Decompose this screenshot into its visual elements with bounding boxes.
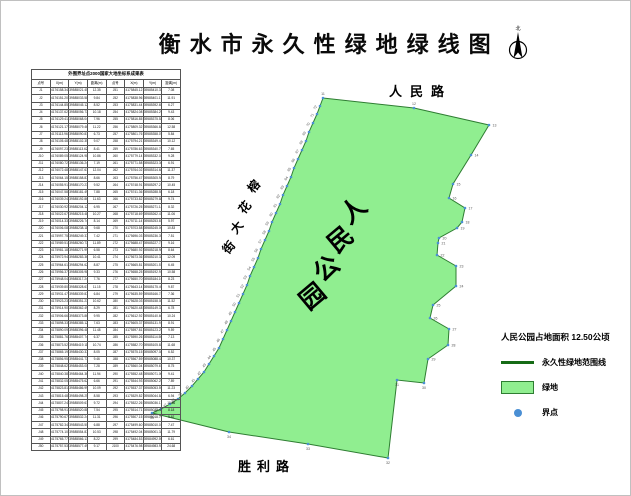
coord-cell: J30 [32,298,51,305]
coord-cell: 39585068.04 [69,117,88,124]
boundary-point-dot [488,124,491,127]
coord-cell: 9.16 [162,240,181,247]
table-row: J224175989.5139585260.7311.89J724175688.… [32,240,181,247]
boundary-point-dot [271,221,274,224]
coord-cell: 39585407.74 [69,335,88,342]
coord-cell: J38 [32,356,51,363]
coord-cell: 8.29 [87,305,106,312]
coord-cell: 39585090.81 [69,131,88,138]
boundary-point-dot [226,329,229,332]
coord-cell: 39585192.86 [69,196,88,203]
boundary-point-label: 28 [452,344,456,348]
boundary-point-label: 66 [291,158,297,164]
coord-cell: 11.79 [162,429,181,436]
table-row: J184176022.6739585215.4810.27J684175718.… [32,211,181,218]
table-row: J474175782.3439585543.506.88J974175499.6… [32,422,181,429]
coord-cell: 10.24 [162,313,181,320]
coord-cell: 10.62 [87,298,106,305]
coord-cell: 4175981.18 [50,247,69,254]
coord-cell: J76 [106,269,125,276]
coord-cell: J12 [32,167,51,174]
coord-cell: 39585577.49 [69,444,88,451]
coord-cell: J53 [106,102,125,109]
table-row: J24176151.2039585033.589.84J524175838.96… [32,95,181,102]
boundary-point-label: 57 [258,239,264,245]
table-row: J504175757.5339585577.499.17J1004175476.… [32,444,181,451]
table-title: 外围界址点2000国家大地坐标系成果表 [32,70,181,80]
coord-cell: J45 [32,407,51,414]
north-needle [514,32,523,58]
coord-cell: 39585349.41 [143,138,162,145]
coord-cell: 4175711.14 [125,218,144,225]
coord-cell: 4175612.92 [125,313,144,320]
coord-cell: J24 [32,255,51,262]
street-name-char: 街 [218,238,238,258]
coord-cell: J78 [106,284,125,291]
coord-cell: 4176022.67 [50,211,69,218]
coord-cell: 11.06 [162,211,181,218]
coord-cell: 9.72 [87,400,106,407]
coord-cell: 10.09 [87,385,106,392]
coord-cell: 11.15 [87,284,106,291]
coord-cell: 7.28 [87,364,106,371]
coord-cell: J42 [32,385,51,392]
boundary-point-label: 64 [284,176,290,182]
coord-cell: 39585419.11 [69,342,88,349]
coord-cell: 39585262.47 [143,211,162,218]
coord-cell: J8 [32,138,51,145]
boundary-point-dot [249,275,252,278]
table-row: J54176129.4139585068.047.96J554175816.85… [32,117,181,124]
coord-cell: 39585362.49 [69,305,88,312]
boundary-point-label: 31 [395,383,399,387]
coord-cell: 9.43 [162,109,181,116]
table-row: J134176064.1539585158.878.66J634175756.4… [32,175,181,182]
coord-cell: 4176039.24 [50,196,69,203]
coord-cell: 4175620.48 [125,305,144,312]
boundary-point-label: 46 [216,338,222,344]
boundary-point-label: 69 [302,131,308,137]
coord-cell: J25 [32,262,51,269]
boundary-point-label: 26 [434,317,438,321]
boundary-point-dot [316,113,319,116]
coord-cell: 39585210.32 [143,255,162,262]
boundary-point-label: 51 [236,293,242,299]
legend-item-boundary-point: 界点 [501,407,626,418]
coord-cell: J9 [32,146,51,153]
coord-cell: 10.41 [87,255,106,262]
boundary-point-dot [242,293,245,296]
coord-cell: 8.91 [162,320,181,327]
coord-cell: 39585520.88 [69,407,88,414]
coord-cell: 7.13 [162,335,181,342]
coord-cell: 4175856.95 [50,356,69,363]
table-row: J114176080.7239585136.247.19J614175771.5… [32,160,181,167]
coord-cell: 12.04 [87,167,106,174]
coord-cell: J3 [32,102,51,109]
coord-cell: 8.79 [162,175,181,182]
coord-cell: J84 [106,327,125,334]
table-header-row: 点号X(m)Y(m)距离(m)点号X(m)Y(m)距离(m) [32,80,181,88]
table-row: J14176158.3439585021.4512.35J514175845.1… [32,88,181,95]
coord-cell: J13 [32,175,51,182]
column-header: X(m) [50,80,69,88]
coord-cell: 8.23 [162,276,181,283]
street-name-char: 大 [227,218,246,237]
coord-cell: 4175923.23 [50,298,69,305]
coord-cell: 5.84 [162,131,181,138]
boundary-point-label: 25 [437,304,441,308]
coord-cell: 39585314.68 [143,167,162,174]
boundary-point-label: 49 [228,311,234,317]
coord-cell: 11.22 [87,124,106,131]
coord-cell: 39585123.25 [143,327,162,334]
coord-cell: 39585305.98 [69,269,88,276]
boundary-point-dot [455,265,458,268]
coord-cell: 39585204.12 [69,204,88,211]
coord-cell: 39585097.08 [143,349,162,356]
coord-cell: 4176047.58 [50,189,69,196]
coordinate-table: 外围界址点2000国家大地坐标系成果表 点号X(m)Y(m)距离(m)点号X(m… [31,69,181,451]
coord-cell: J77 [106,276,125,283]
boundary-point-dot [437,242,440,245]
coord-cell: J79 [106,291,125,298]
coord-cell: J7 [32,131,51,138]
coord-cell: 9.41 [162,371,181,378]
table-row: J464175790.6739585532.2411.31J964175507.… [32,414,181,421]
boundary-point-label: 48 [224,320,230,326]
column-header: Y(m) [143,80,162,88]
boundary-point-swatch [501,409,534,417]
table-row: J384175856.9539585441.739.46J884175567.5… [32,356,181,363]
boundary-point-label: 24 [460,285,464,289]
coord-cell: 39585045.12 [69,102,88,109]
table-row: J214175997.7539585249.377.42J714175696.0… [32,233,181,240]
table-row: J354175881.7639585407.746.37J854175590.2… [32,335,181,342]
coord-cell: 39585166.74 [143,291,162,298]
column-header: Y(m) [69,80,88,88]
coord-cell: 10.83 [162,226,181,233]
coord-cell: 4175765.77 [50,436,69,443]
table-row: J204176006.0839585238.119.68J704175703.5… [32,226,181,233]
coord-cell: J46 [32,414,51,421]
coord-cell: 39585260.73 [69,240,88,247]
coord-cell: J11 [32,160,51,167]
coord-cell: 8.05 [87,349,106,356]
boundary-point-label: 30 [422,386,426,390]
boundary-point-dot [319,105,322,108]
coord-cell: 39585088.42 [143,356,162,363]
coord-cell: J62 [106,167,125,174]
coord-cell: 24.68 [162,444,181,451]
boundary-point-dot [279,203,282,206]
coord-cell: J74 [106,255,125,262]
column-header: 点号 [32,80,51,88]
table-row: J484175774.1039585554.8710.53J984175492.… [32,429,181,436]
coord-cell: 11.52 [162,298,181,305]
boundary-point-label: 22 [441,254,445,258]
coord-cell: 7.96 [87,117,106,124]
coord-cell: J49 [32,436,51,443]
boundary-point-label: 14 [475,154,479,158]
coord-cell: 4175838.96 [125,95,144,102]
coord-cell: 6.27 [162,102,181,109]
boundary-point-dot [452,183,455,186]
coord-cell: J32 [32,313,51,320]
coord-cell: 39585509.61 [69,400,88,407]
boundary-point-label: 55 [251,257,257,263]
table-row: J304175923.2339585351.2310.62J804175628.… [32,298,181,305]
coord-cell: 39585140.66 [143,313,162,320]
coord-cell: 39585201.57 [143,262,162,269]
coord-cell: 8.14 [87,218,106,225]
table-row: J104176089.0539585124.9810.86J604175779.… [32,153,181,160]
coord-cell: J64 [106,182,125,189]
coord-cell: J66 [106,196,125,203]
coord-cell: J28 [32,284,51,291]
coord-cell: 4176144.85 [50,102,69,109]
coord-cell: J65 [106,189,125,196]
table-row: J404175840.3839585464.3611.94J904175552.… [32,371,181,378]
coord-cell: J83 [106,320,125,327]
coord-cell: 4175939.80 [50,284,69,291]
coord-cell: 39585124.98 [69,153,88,160]
coord-cell: 4175628.03 [125,298,144,305]
table-row: J194176014.3339585226.748.14J694175711.1… [32,218,181,225]
boundary-point-label: 34 [227,435,231,439]
coord-cell: 39585136.24 [69,160,88,167]
coord-cell: 39585401.17 [143,95,162,102]
coord-cell: 39584983.93 [143,444,162,451]
coord-cell: J99 [106,436,125,443]
boundary-point-dot [213,355,216,358]
coord-cell: 12.58 [162,124,181,131]
coord-cell: 4175816.85 [125,117,144,124]
coord-cell: 39585392.65 [143,102,162,109]
table-row: J164176039.2439585192.8611.63J664175733.… [32,196,181,203]
coord-cell: 4176105.48 [50,138,69,145]
coord-cell: J97 [106,422,125,429]
coord-cell: 4176097.23 [50,146,69,153]
boundary-point-label: 15 [457,183,461,187]
legend: 人民公园占地面积 12.50公顷 永久性绿地范围线 绿地 界点 [501,331,626,431]
coord-cell: 4175779.14 [125,153,144,160]
coord-cell: 39585358.07 [143,131,162,138]
coord-cell: J98 [106,429,125,436]
coord-cell: 4175964.61 [50,262,69,269]
coord-cell: 7.42 [87,233,106,240]
coord-cell: 4175582.70 [125,342,144,349]
coord-cell: J6 [32,124,51,131]
coord-cell: 4175748.91 [125,182,144,189]
coord-cell: 4175552.48 [125,371,144,378]
coord-cell: 4175931.47 [50,291,69,298]
boundary-point-label: 11 [321,92,325,96]
boundary-point-dot [429,317,432,320]
coord-cell: J20 [32,226,51,233]
boundary-point-label: 29 [432,358,436,362]
coord-cell: J47 [32,422,51,429]
boundary-point-dot [301,149,304,152]
boundary-point-dot [238,302,241,305]
table-row: J74176113.9639585090.816.73J574175801.76… [32,131,181,138]
coord-cell: J40 [32,371,51,378]
coord-cell: 39585184.16 [143,276,162,283]
coord-cell: 4175815.48 [50,393,69,400]
coord-cell: 39585149.33 [143,305,162,312]
coord-cell: 4175703.58 [125,226,144,233]
coord-cell: 39585056.73 [69,109,88,116]
coord-cell: J55 [106,117,125,124]
coord-cell: 39585170.23 [69,182,88,189]
coord-cell: 39585158.87 [69,175,88,182]
coord-cell: J48 [32,429,51,436]
coord-cell: 4176055.91 [50,182,69,189]
coord-cell: 39585373.86 [69,313,88,320]
table-row: J294175931.4739585339.876.84J794175635.5… [32,291,181,298]
boundary-point-dot [455,285,458,288]
boundary-point-dot [197,378,200,381]
coord-cell: 4175794.21 [125,138,144,145]
table-row: J84176105.4839585102.359.07J584175794.21… [32,138,181,145]
coord-cell: J87 [106,349,125,356]
coord-cell: 39585226.74 [69,218,88,225]
coord-cell: 4175890.09 [50,327,69,334]
boundary-point-label: 23 [460,265,464,269]
boundary-point-dot [396,379,399,382]
coord-cell: 4175507.15 [125,414,144,421]
coord-cell: 4175537.37 [125,385,144,392]
boundary-point-dot [260,248,263,251]
table-row: J124176072.4839585147.6112.04J624175764.… [32,167,181,174]
column-header: X(m) [125,80,144,88]
coord-cell: 10.66 [162,400,181,407]
coord-cell: 11.94 [87,371,106,378]
coord-cell: 39585543.50 [69,422,88,429]
coord-cell: 9.07 [87,138,106,145]
coord-cell: 7.51 [162,233,181,240]
legend-label: 永久性绿地范围线 [542,357,606,368]
coord-cell: 9.87 [162,284,181,291]
coord-cell: 9.74 [162,196,181,203]
boundary-point-dot [413,107,416,110]
coord-cell: J2 [32,95,51,102]
coord-cell: 4176151.20 [50,95,69,102]
boundary-point-dot [387,457,390,460]
coord-cell: J51 [106,88,125,95]
coord-cell: J41 [32,378,51,385]
coord-cell: 39585245.06 [143,226,162,233]
coord-cell: 10.12 [162,138,181,145]
coord-cell: 4175948.04 [50,276,69,283]
boundary-point-label: 20 [443,237,447,241]
coord-cell: 4175898.33 [50,320,69,327]
coord-cell: 4175529.82 [125,393,144,400]
coord-cell: 4175665.81 [125,262,144,269]
boundary-point-label: 13 [493,124,497,128]
boundary-point-dot [228,431,231,434]
coord-cell: J75 [106,262,125,269]
coord-cell: J86 [106,342,125,349]
coord-cell: 39585340.75 [143,146,162,153]
coord-cell: 6.73 [87,131,106,138]
coord-cell: 6.66 [87,378,106,385]
coord-cell: J29 [32,291,51,298]
coord-cell: 4175635.59 [125,291,144,298]
table-row: J44176137.6239585056.7310.18J544175824.0… [32,109,181,116]
boundary-point-label: 67 [295,149,301,155]
boundary-point-label: 59 [265,221,271,227]
coord-cell: 9.52 [87,182,106,189]
coord-cell: J91 [106,378,125,385]
boundary-point-dot [307,443,310,446]
coord-cell: 8.87 [87,262,106,269]
coord-cell: J43 [32,393,51,400]
coord-cell: 39585071.00 [143,371,162,378]
coord-cell: 39585279.88 [143,196,162,203]
coord-cell: 4175865.19 [50,349,69,356]
map-sheet: 衡水市永久性绿地绿线图 北 11121314151617181920212223… [0,0,631,496]
coord-cell: J72 [106,240,125,247]
coord-cell: 6.78 [162,305,181,312]
coord-cell: J57 [106,131,125,138]
coord-cell: 7.63 [87,320,106,327]
boundary-point-dot [312,122,315,125]
coord-cell: J35 [32,335,51,342]
table-row: J364175873.5239585419.1110.74J864175582.… [32,342,181,349]
coord-cell: 39585027.42 [143,407,162,414]
coordinate-table-body: J14176158.3439585021.4512.35J514175845.1… [32,88,181,451]
boundary-point-label: 60 [269,212,275,218]
coord-cell: 8.64 [162,247,181,254]
coord-cell: 39584992.59 [143,436,162,443]
coord-cell: 4176030.92 [50,204,69,211]
table-row: J334175898.3339585385.127.63J834175605.3… [32,320,181,327]
boundary-point-dot [448,197,451,200]
coord-cell: 4175786.63 [125,146,144,153]
boundary-point-dot [230,320,233,323]
coord-cell: 4175848.62 [50,364,69,371]
table-row: J264175956.3739585305.989.33J764175658.2… [32,269,181,276]
coord-cell: 39585131.91 [143,320,162,327]
coord-cell: J23 [32,247,51,254]
coord-cell: 39585375.52 [143,117,162,124]
coord-cell: 7.89 [162,378,181,385]
boundary-point-label: 63 [280,185,286,191]
coord-cell: 4175906.66 [50,313,69,320]
coord-cell: 39585062.25 [143,378,162,385]
coord-cell: 9.95 [87,313,106,320]
coord-cell: J37 [32,349,51,356]
boundary-point-dot [282,194,285,197]
coord-cell: 7.19 [87,160,106,167]
coord-cell: 4175774.10 [50,429,69,436]
boundary-point-label: 58 [262,230,268,236]
coord-cell: 8.06 [162,117,181,124]
coord-cell: 9.33 [87,269,106,276]
street-name-char: 榕 [244,176,264,196]
boundary-point-label: 12 [412,102,416,106]
coord-cell: 10.53 [87,429,106,436]
coord-cell: 4175845.12 [125,88,144,95]
coord-cell: J52 [106,95,125,102]
coord-cell: 4175597.81 [125,327,144,334]
coord-cell: 9.17 [87,444,106,451]
coord-cell: 4176064.15 [50,175,69,182]
boundary-point-label: 70 [306,122,312,128]
coord-cell: 7.76 [87,276,106,283]
coord-cell: J19 [32,218,51,225]
